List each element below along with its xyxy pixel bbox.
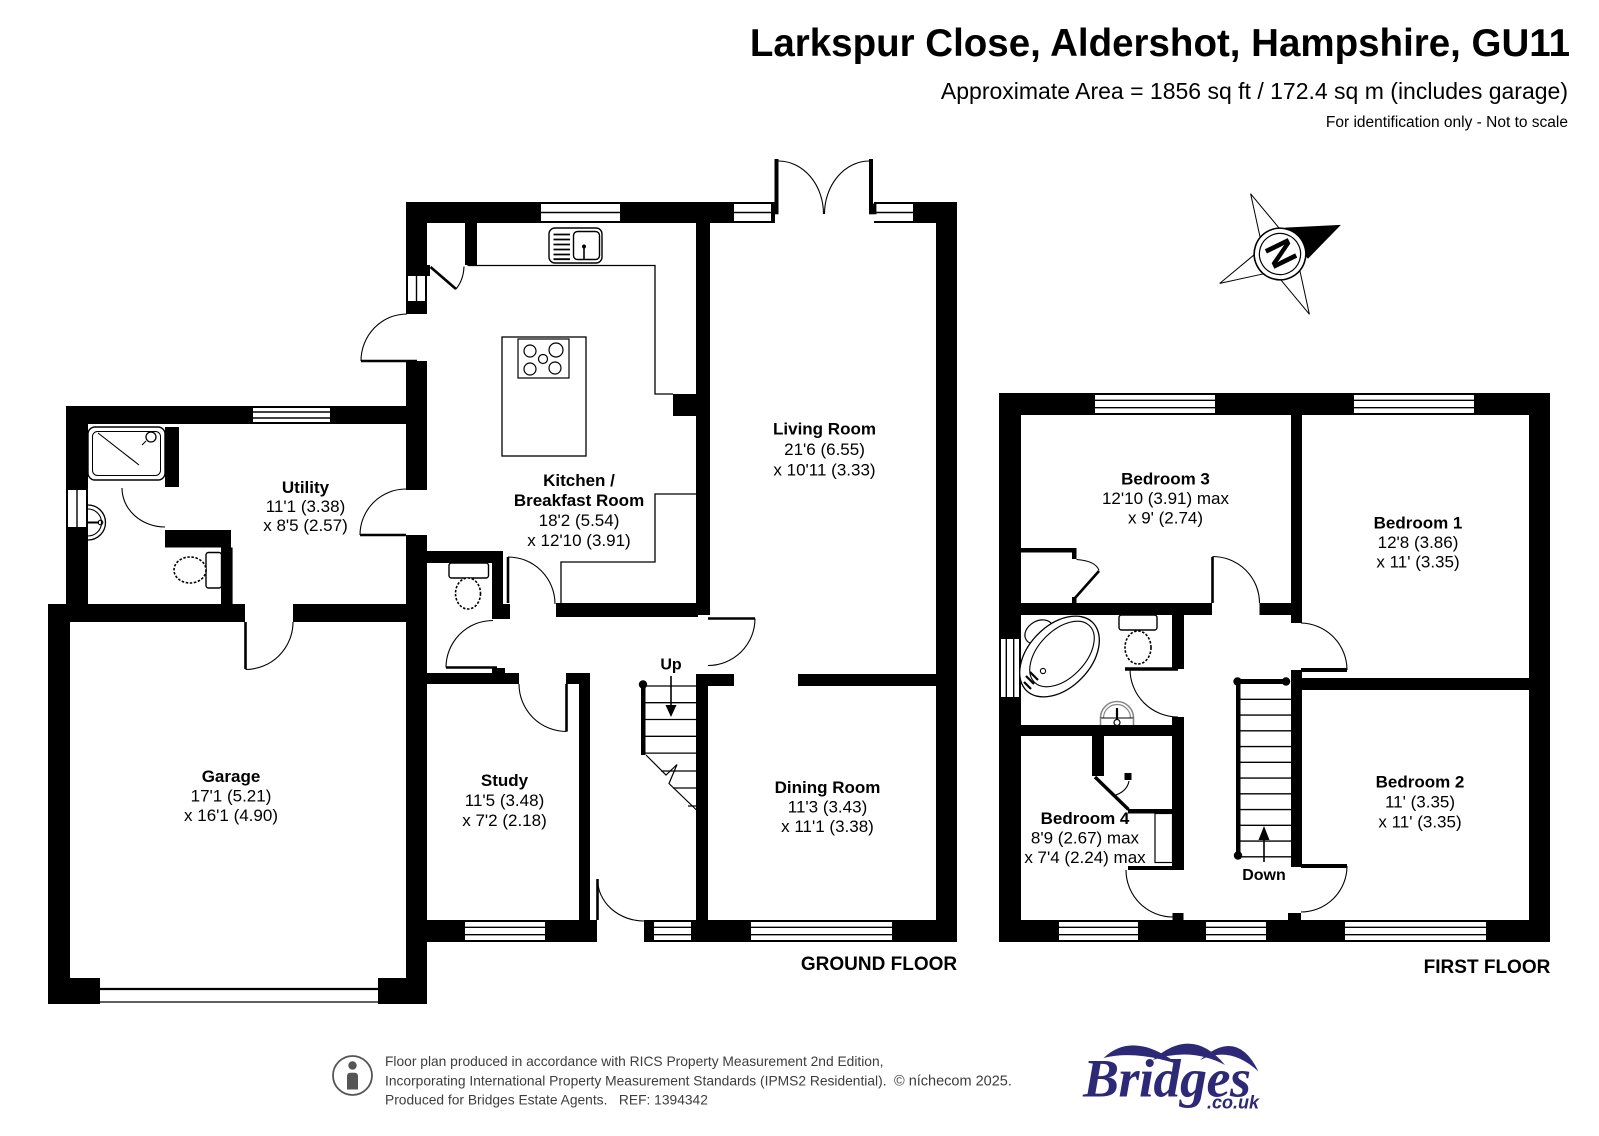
svg-text:11'5 (3.48): 11'5 (3.48) [465,791,544,810]
svg-text:For identification only - Not: For identification only - Not to scale [1326,114,1568,131]
svg-text:x 7'4 (2.24) max: x 7'4 (2.24) max [1024,848,1146,867]
svg-text:17'1 (5.21): 17'1 (5.21) [191,787,272,806]
svg-text:Living Room: Living Room [773,420,876,439]
svg-text:Study: Study [481,771,529,790]
svg-text:Bedroom 1: Bedroom 1 [1374,514,1463,533]
svg-text:x 11' (3.35): x 11' (3.35) [1378,813,1461,832]
svg-text:x 8'5 (2.57): x 8'5 (2.57) [263,516,348,535]
svg-text:x 16'1 (4.90): x 16'1 (4.90) [184,806,278,825]
svg-text:11' (3.35): 11' (3.35) [1385,793,1455,812]
svg-text:Approximate Area = 1856 sq ft: Approximate Area = 1856 sq ft / 172.4 sq… [941,78,1568,104]
svg-text:12'10 (3.91) max: 12'10 (3.91) max [1102,489,1230,508]
svg-text:x 7'2 (2.18): x 7'2 (2.18) [462,811,547,830]
svg-text:Bedroom 4: Bedroom 4 [1041,809,1130,828]
svg-text:8'9 (2.67) max: 8'9 (2.67) max [1031,829,1140,848]
svg-text:© níchecom 2025.: © níchecom 2025. [894,1073,1012,1089]
svg-text:Garage: Garage [202,767,261,786]
svg-text:Bedroom 2: Bedroom 2 [1376,773,1465,792]
svg-text:21'6 (6.55): 21'6 (6.55) [784,440,865,459]
svg-text:11'1 (3.38): 11'1 (3.38) [266,497,345,516]
svg-text:Floor plan produced in accorda: Floor plan produced in accordance with R… [385,1054,883,1069]
svg-text:x 11'1 (3.38): x 11'1 (3.38) [781,817,874,836]
svg-text:Utility: Utility [282,478,330,497]
svg-text:Down: Down [1242,867,1286,884]
svg-text:Incorporating International Pr: Incorporating International Property Mea… [385,1073,887,1088]
svg-text:Up: Up [660,657,682,674]
svg-text:Produced for Bridges Estate Ag: Produced for Bridges Estate Agents. REF:… [385,1093,708,1108]
svg-text:11'3 (3.43): 11'3 (3.43) [788,798,867,817]
svg-text:Larkspur Close, Aldershot, Ham: Larkspur Close, Aldershot, Hampshire, GU… [750,22,1570,65]
svg-text:x 11' (3.35): x 11' (3.35) [1376,553,1459,572]
svg-text:Kitchen /: Kitchen / [543,471,615,490]
svg-text:18'2 (5.54): 18'2 (5.54) [539,511,620,530]
svg-text:x 12'10 (3.91): x 12'10 (3.91) [527,531,630,550]
svg-text:Bedroom 3: Bedroom 3 [1121,470,1210,489]
svg-text:FIRST FLOOR: FIRST FLOOR [1424,957,1551,978]
svg-text:x 10'11 (3.33): x 10'11 (3.33) [773,461,875,480]
svg-text:.co.uk: .co.uk [1207,1093,1260,1113]
svg-text:GROUND FLOOR: GROUND FLOOR [801,954,957,975]
svg-text:12'8 (3.86): 12'8 (3.86) [1378,533,1459,552]
svg-text:Breakfast Room: Breakfast Room [514,491,644,510]
svg-text:Dining Room: Dining Room [775,778,881,797]
svg-text:x 9' (2.74): x 9' (2.74) [1128,509,1203,528]
